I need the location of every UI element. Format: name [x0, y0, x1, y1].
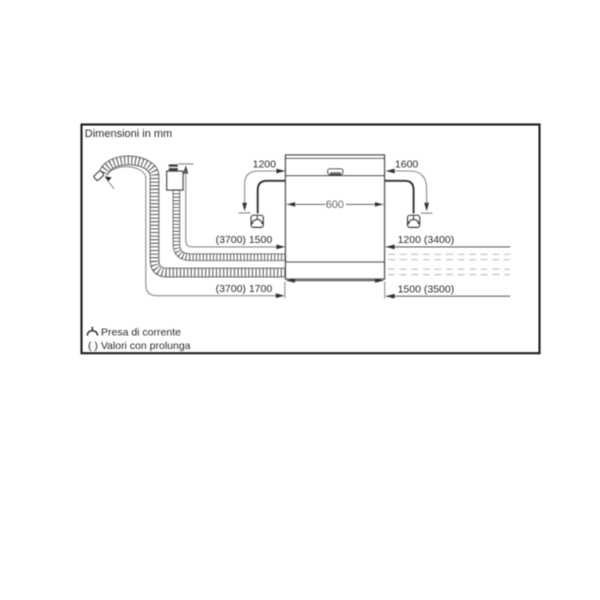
svg-text:( ) Valori con prolunga: ( ) Valori con prolunga — [88, 340, 191, 352]
svg-text:Dimensioni in mm: Dimensioni in mm — [85, 128, 172, 140]
svg-text:1200 (3400): 1200 (3400) — [398, 234, 455, 246]
svg-text:1600: 1600 — [395, 159, 419, 171]
svg-text:Presa di corrente: Presa di corrente — [101, 326, 181, 338]
svg-text:600: 600 — [326, 199, 344, 211]
svg-text:(3700) 1500: (3700) 1500 — [216, 234, 273, 246]
svg-text:1500 (3500): 1500 (3500) — [398, 284, 455, 296]
svg-text:1200: 1200 — [253, 159, 277, 171]
svg-text:(3700) 1700: (3700) 1700 — [216, 283, 273, 295]
